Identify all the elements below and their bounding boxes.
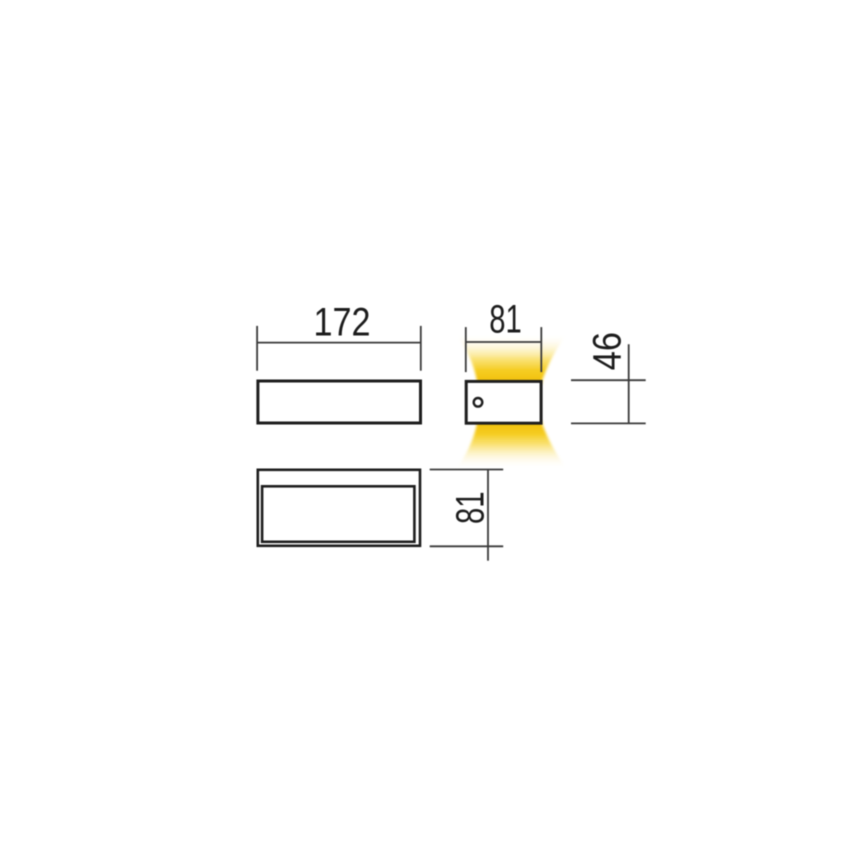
svg-text:172: 172 bbox=[313, 300, 370, 344]
svg-text:81: 81 bbox=[449, 491, 492, 524]
svg-text:81: 81 bbox=[489, 298, 522, 341]
svg-text:46: 46 bbox=[584, 332, 629, 370]
